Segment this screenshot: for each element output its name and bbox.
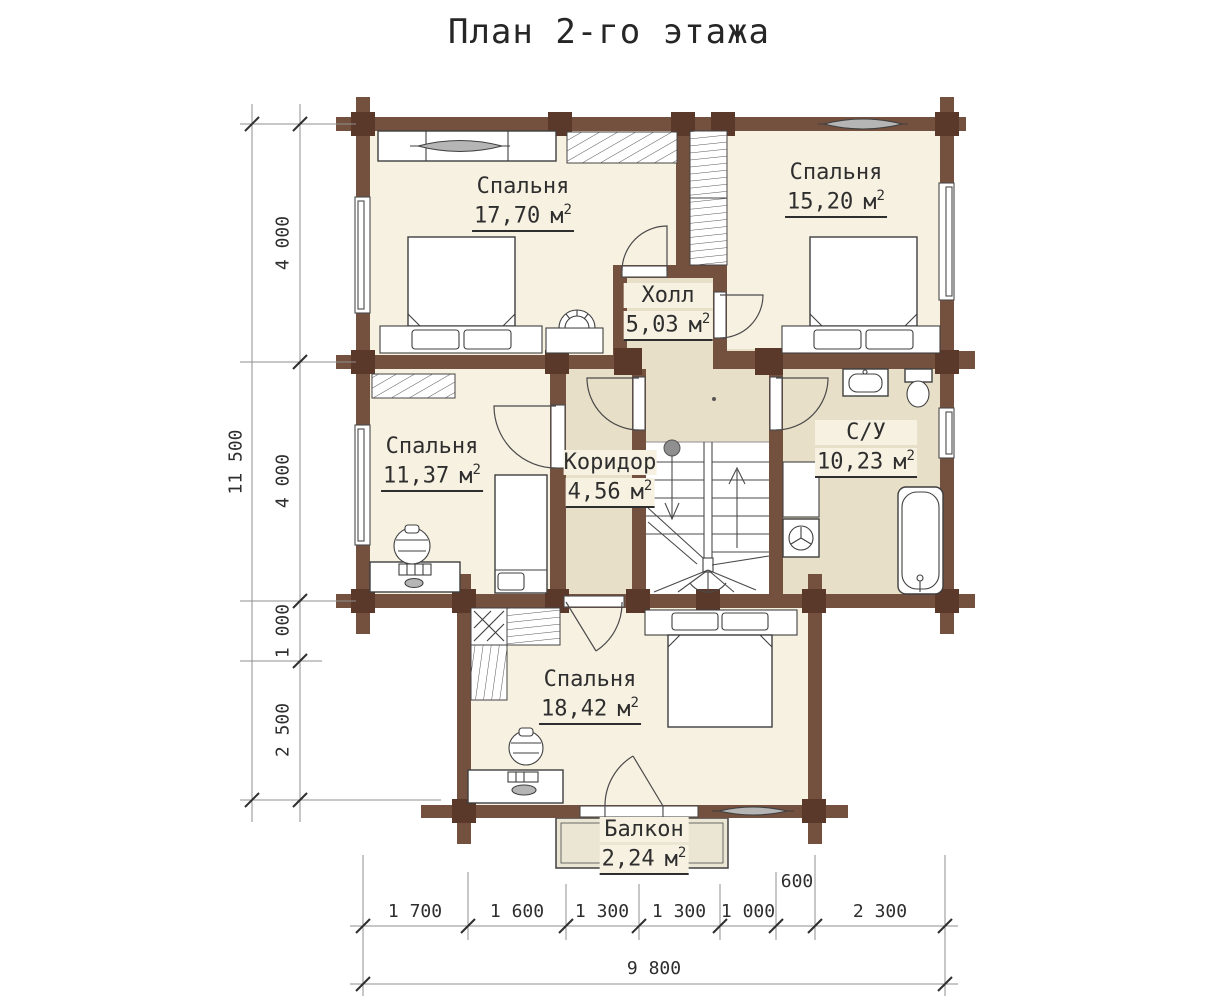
room-label-corridor: Коридор 4,56м2 xyxy=(564,450,657,508)
dim-left-segment-1: 4 000 xyxy=(273,216,294,270)
room-label-bedroom-top-right: Спальня 15,20м2 xyxy=(785,160,887,218)
hanger-rod-hatch xyxy=(372,374,455,398)
dim-left-total: 11 500 xyxy=(226,429,247,494)
single-bed xyxy=(495,475,547,593)
dim-left-segment-3: 1 000 xyxy=(273,604,294,658)
wardrobe-cell-1-hatch xyxy=(690,131,727,198)
room-label-bedroom-mid-left: Спальня 11,37м2 xyxy=(381,434,483,492)
dim-left-segment-2: 4 000 xyxy=(273,454,294,508)
dim-bottom-segment-7: 2 300 xyxy=(853,901,907,922)
desk-2 xyxy=(468,770,563,803)
room-label-bedroom-bottom: Спальня 18,42м2 xyxy=(539,667,641,725)
bottom-dim-ticks xyxy=(356,919,952,991)
dim-bottom-segment-6: 600 xyxy=(781,871,814,892)
floor-plan-page: План 2-го этажа Спальня 17,70м2 Спальня … xyxy=(0,0,1218,1007)
dim-bottom-segment-5: 1 000 xyxy=(721,901,775,922)
window-left-top xyxy=(355,197,370,313)
dim-bottom-segment-1: 1 700 xyxy=(388,901,442,922)
bathtub xyxy=(898,487,943,594)
sink xyxy=(843,369,888,396)
room-label-hall: Холл 5,03м2 xyxy=(624,283,713,341)
room-label-balcony: Балкон 2,24м2 xyxy=(600,817,689,875)
page-title: План 2-го этажа xyxy=(0,12,1218,52)
room-label-bathroom: С/У 10,23м2 xyxy=(815,420,917,478)
dim-left-segment-4: 2 500 xyxy=(273,703,294,757)
desk-1 xyxy=(370,562,460,592)
dresser xyxy=(378,131,556,161)
room-label-bedroom-top-left: Спальня 17,70м2 xyxy=(472,174,574,232)
window-right-bath xyxy=(939,408,954,458)
washing-machine xyxy=(783,519,819,557)
cabinet xyxy=(783,462,819,517)
dim-bottom-segment-4: 1 300 xyxy=(652,901,706,922)
window-left-mid xyxy=(355,425,370,545)
dim-bottom-segment-2: 1 600 xyxy=(490,901,544,922)
stair-newel-post xyxy=(703,558,713,572)
wardrobe-cell-2-hatch xyxy=(690,198,727,265)
dim-bottom-total: 9 800 xyxy=(627,958,681,979)
dim-bottom-segment-3: 1 300 xyxy=(575,901,629,922)
wardrobe-rack-hatch xyxy=(567,132,677,163)
landing-dot xyxy=(712,397,716,401)
window-right-top xyxy=(939,183,954,300)
